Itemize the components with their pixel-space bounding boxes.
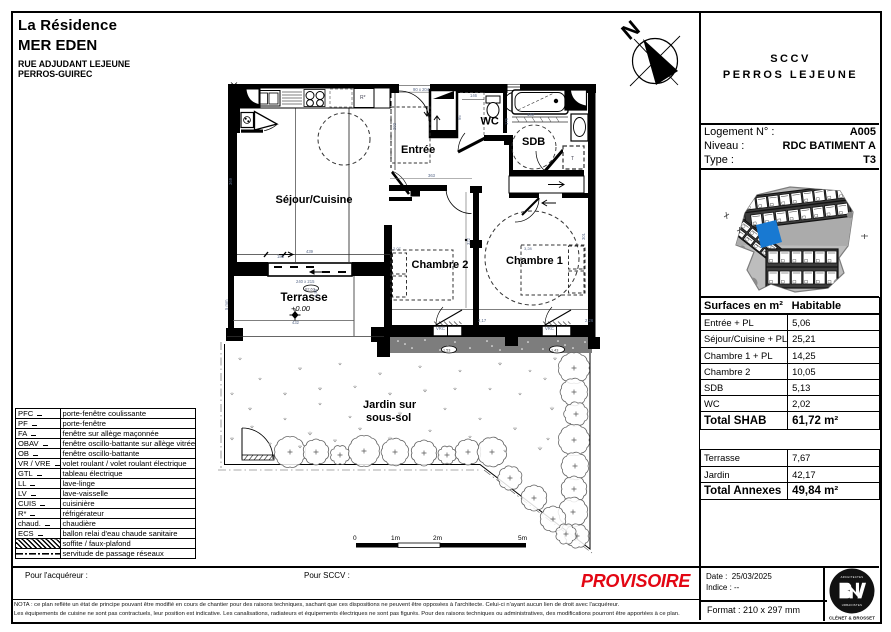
svg-text:2m: 2m xyxy=(433,535,442,542)
svg-text:432: 432 xyxy=(292,320,300,325)
svg-text:140: 140 xyxy=(527,112,535,117)
svg-text:240 x 215: 240 x 215 xyxy=(296,279,315,284)
svg-text:WC: WC xyxy=(481,116,499,128)
svg-text:Entrée: Entrée xyxy=(401,144,435,156)
svg-text:146: 146 xyxy=(470,93,478,98)
svg-text:439: 439 xyxy=(306,249,314,254)
svg-text:Jardin sur: Jardin sur xyxy=(363,399,417,411)
svg-text:1,90: 1,90 xyxy=(313,288,318,297)
svg-text:1m: 1m xyxy=(391,535,400,542)
svg-text:175: 175 xyxy=(504,117,509,125)
svg-text:1,53: 1,53 xyxy=(443,349,450,353)
svg-text:URBANISTES: URBANISTES xyxy=(842,603,863,607)
svg-text:2,26: 2,26 xyxy=(585,318,594,323)
svg-text:5m: 5m xyxy=(518,535,527,542)
svg-text:95: 95 xyxy=(457,115,462,120)
svg-text:5 mm: 5 mm xyxy=(224,299,229,310)
svg-text:301: 301 xyxy=(581,232,586,240)
svg-text:CLÉNET & BROSSET: CLÉNET & BROSSET xyxy=(829,616,875,621)
svg-text:2,07: 2,07 xyxy=(393,246,402,251)
svg-text:90 x 204: 90 x 204 xyxy=(413,87,430,92)
svg-text:T: T xyxy=(571,156,574,162)
svg-text:SDB: SDB xyxy=(522,136,545,148)
svg-text:322: 322 xyxy=(466,237,471,245)
svg-text:Terrasse: Terrasse xyxy=(281,292,328,304)
svg-text:+0.00: +0.00 xyxy=(291,304,311,313)
svg-text:1,43: 1,43 xyxy=(551,349,558,353)
svg-text:Séjour/Cuisine: Séjour/Cuisine xyxy=(276,194,353,206)
svg-text:VRC: VRC xyxy=(545,326,554,331)
svg-text:Chambre 2: Chambre 2 xyxy=(412,259,469,271)
svg-text:369: 369 xyxy=(228,177,233,185)
svg-text:185: 185 xyxy=(277,254,285,259)
svg-text:N: N xyxy=(616,15,644,44)
svg-text:2,17: 2,17 xyxy=(478,318,487,323)
svg-text:sous-sol: sous-sol xyxy=(366,412,411,424)
svg-text:202: 202 xyxy=(392,122,397,130)
svg-text:363: 363 xyxy=(428,173,436,178)
svg-text:VRC: VRC xyxy=(436,326,445,331)
svg-text:R*: R* xyxy=(360,95,366,101)
svg-text:ARCHITECTES: ARCHITECTES xyxy=(841,575,864,579)
svg-text:3,28: 3,28 xyxy=(524,246,533,251)
svg-text:0: 0 xyxy=(353,535,357,542)
svg-text:Chambre 1: Chambre 1 xyxy=(506,255,563,267)
